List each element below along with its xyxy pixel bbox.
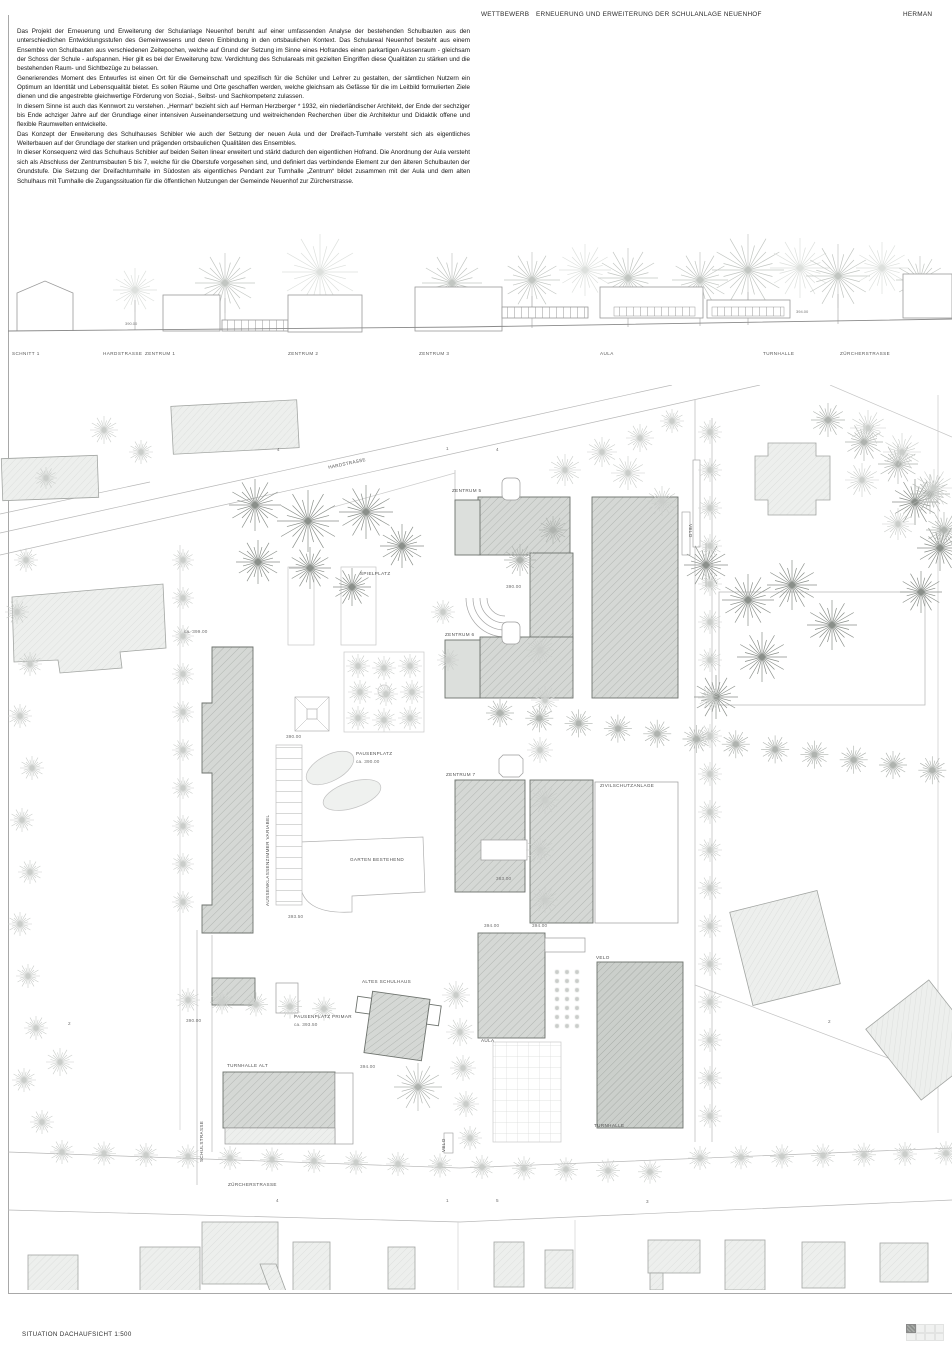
plan-label-spielplatz: SPIELPLATZ [360, 572, 390, 577]
axis-label-hardstrasse: HARDSTRASSE [103, 351, 142, 356]
skylight-pyramid [295, 697, 329, 731]
plan-label-altes-schulhaus: ALTES SCHULHAUS [362, 980, 411, 985]
description-paragraph: Generierendes Moment des Entwurfes ist e… [17, 74, 470, 102]
velo-shelter [693, 460, 700, 547]
description-paragraph: Das Konzept der Erweiterung des Schulhau… [17, 130, 470, 149]
elevation-mark: 394.00 [484, 924, 499, 929]
sheet-border-bottom [8, 1293, 952, 1294]
competition-board: WETTBEWERB ERNEUERUNG UND ERWEITERUNG DE… [0, 0, 952, 1348]
plan-label-velo: VELO [596, 956, 610, 961]
page-title: ERNEUERUNG UND ERWEITERUNG DER SCHULANLA… [536, 11, 762, 18]
elevation-mark: 390.00 [125, 322, 137, 326]
cruciform-building [755, 443, 830, 515]
zentrum-7 [455, 780, 525, 892]
lot-number: 4 [277, 448, 280, 453]
legend-swatch [935, 1324, 945, 1333]
drawing-caption: SITUATION DACHAUFSICHT 1:500 [22, 1331, 132, 1338]
plan-label-zentrum5: ZENTRUM 5 [452, 489, 481, 494]
elevation-mark: 390.00 [186, 1019, 201, 1024]
axis-label-aula: AULA [600, 351, 614, 356]
elevation-mark: 390.00 [286, 735, 301, 740]
legend-swatch [906, 1333, 916, 1342]
dreifachturnhalle [597, 962, 683, 1128]
axis-label-turnhalle: TURNHALLE [763, 351, 794, 356]
plan-label-zentrum6: ZENTRUM 6 [445, 633, 474, 638]
aula-building [478, 933, 545, 1038]
axis-label-zuercherstrasse: ZÜRCHERSTRASSE [840, 351, 890, 356]
elevation-mark: 394.00 [532, 924, 547, 929]
plan-label-pausenplatz: PAUSENPLATZ [356, 752, 392, 757]
description-paragraph: In diesem Sinne ist auch das Kennwort zu… [17, 102, 470, 130]
zentrum-6 [480, 637, 573, 698]
spielplatz-frames [288, 567, 376, 645]
sports-field [719, 592, 925, 705]
legend-swatch [925, 1324, 935, 1333]
elevation-mark: ca. 399.00 [184, 630, 207, 635]
section-drawing [8, 228, 952, 340]
elevation-mark: 394.00 [796, 310, 808, 314]
section-label: SCHNITT 1 [12, 351, 40, 356]
elevation-mark: ca. 390.00 [356, 760, 379, 765]
zivilschutzanlage-outline [595, 782, 678, 923]
altes-schulhaus-building [350, 989, 442, 1062]
legend-swatch-dark [906, 1324, 916, 1333]
elevation-mark: 393.50 [288, 915, 303, 920]
zentrum-slab-east [592, 497, 678, 698]
schulhaus-schibler [202, 647, 253, 933]
competition-label: WETTBEWERB [481, 11, 529, 18]
elevation-mark: 383.00 [496, 877, 511, 882]
legend-swatch [925, 1333, 935, 1342]
legend-swatch [916, 1324, 926, 1333]
description-paragraph: Das Projekt der Erneuerung und Erweiteru… [17, 27, 470, 74]
lot-number: 2 [68, 1022, 71, 1027]
zentrum-5 [478, 497, 570, 555]
lot-number: 1 [446, 1199, 449, 1204]
axis-label-zentrum1: ZENTRUM 1 [145, 351, 175, 356]
lot-number: 4 [496, 448, 499, 453]
plan-label-garten: GARTEN BESTEHEND [350, 858, 404, 863]
garden-boundary [300, 837, 425, 912]
plan-label-velo: VELO [687, 524, 692, 538]
gable-house [17, 281, 73, 331]
stair-octagon [499, 755, 523, 777]
author-code: HERMAN [903, 11, 932, 18]
plan-label-zentrum7: ZENTRUM 7 [446, 773, 475, 778]
legend-swatch [916, 1333, 926, 1342]
plan-label-schulstrasse: SCHULSTRASSE [200, 1121, 205, 1162]
plan-label-pausenplatz-primar: PAUSENPLATZ PRIMAR [294, 1015, 352, 1020]
hatch-legend [906, 1324, 944, 1341]
plaza-grid [493, 1042, 561, 1142]
description-paragraph: In dieser Konsequenz wird das Schulhaus … [17, 148, 470, 185]
elevation-mark: 390.00 [506, 585, 521, 590]
site-plan-drawing [0, 385, 952, 1290]
elevation-mark: 394.00 [360, 1065, 375, 1070]
section-trees [113, 234, 944, 313]
lot-number: 2 [828, 1020, 831, 1025]
plan-label-velo: VELO [442, 1138, 447, 1152]
lot-number: 3 [646, 1200, 649, 1205]
plan-label-turnhalle: TURNHALLE [594, 1124, 624, 1129]
plan-label-zivilschutzanlage: ZIVILSCHUTZANLAGE [600, 784, 654, 789]
project-description: Das Projekt der Erneuerung und Erweiteru… [17, 27, 470, 186]
plan-label-turnhalle-alt: TURNHALLE ALT [227, 1064, 268, 1069]
lot-number: 1 [446, 447, 449, 452]
plan-label-aula: AULA [481, 1039, 494, 1044]
axis-label-zentrum3: ZENTRUM 3 [419, 351, 449, 356]
elevation-mark: ca. 393.50 [294, 1023, 317, 1028]
lot-number: 4 [276, 1199, 279, 1204]
pergola-strip [276, 745, 302, 905]
axis-label-zentrum2: ZENTRUM 2 [288, 351, 318, 356]
plan-label-zuercherstrasse: ZÜRCHERSTRASSE [228, 1183, 277, 1188]
section-buildings [17, 274, 952, 332]
legend-swatch [935, 1333, 945, 1342]
lot-number: 5 [496, 1199, 499, 1204]
turnhalle-alt-building [223, 1072, 335, 1128]
plan-label-aussenklassenzimmer: AUSSENKLASSENZIMMER VARIABEL [266, 815, 271, 906]
